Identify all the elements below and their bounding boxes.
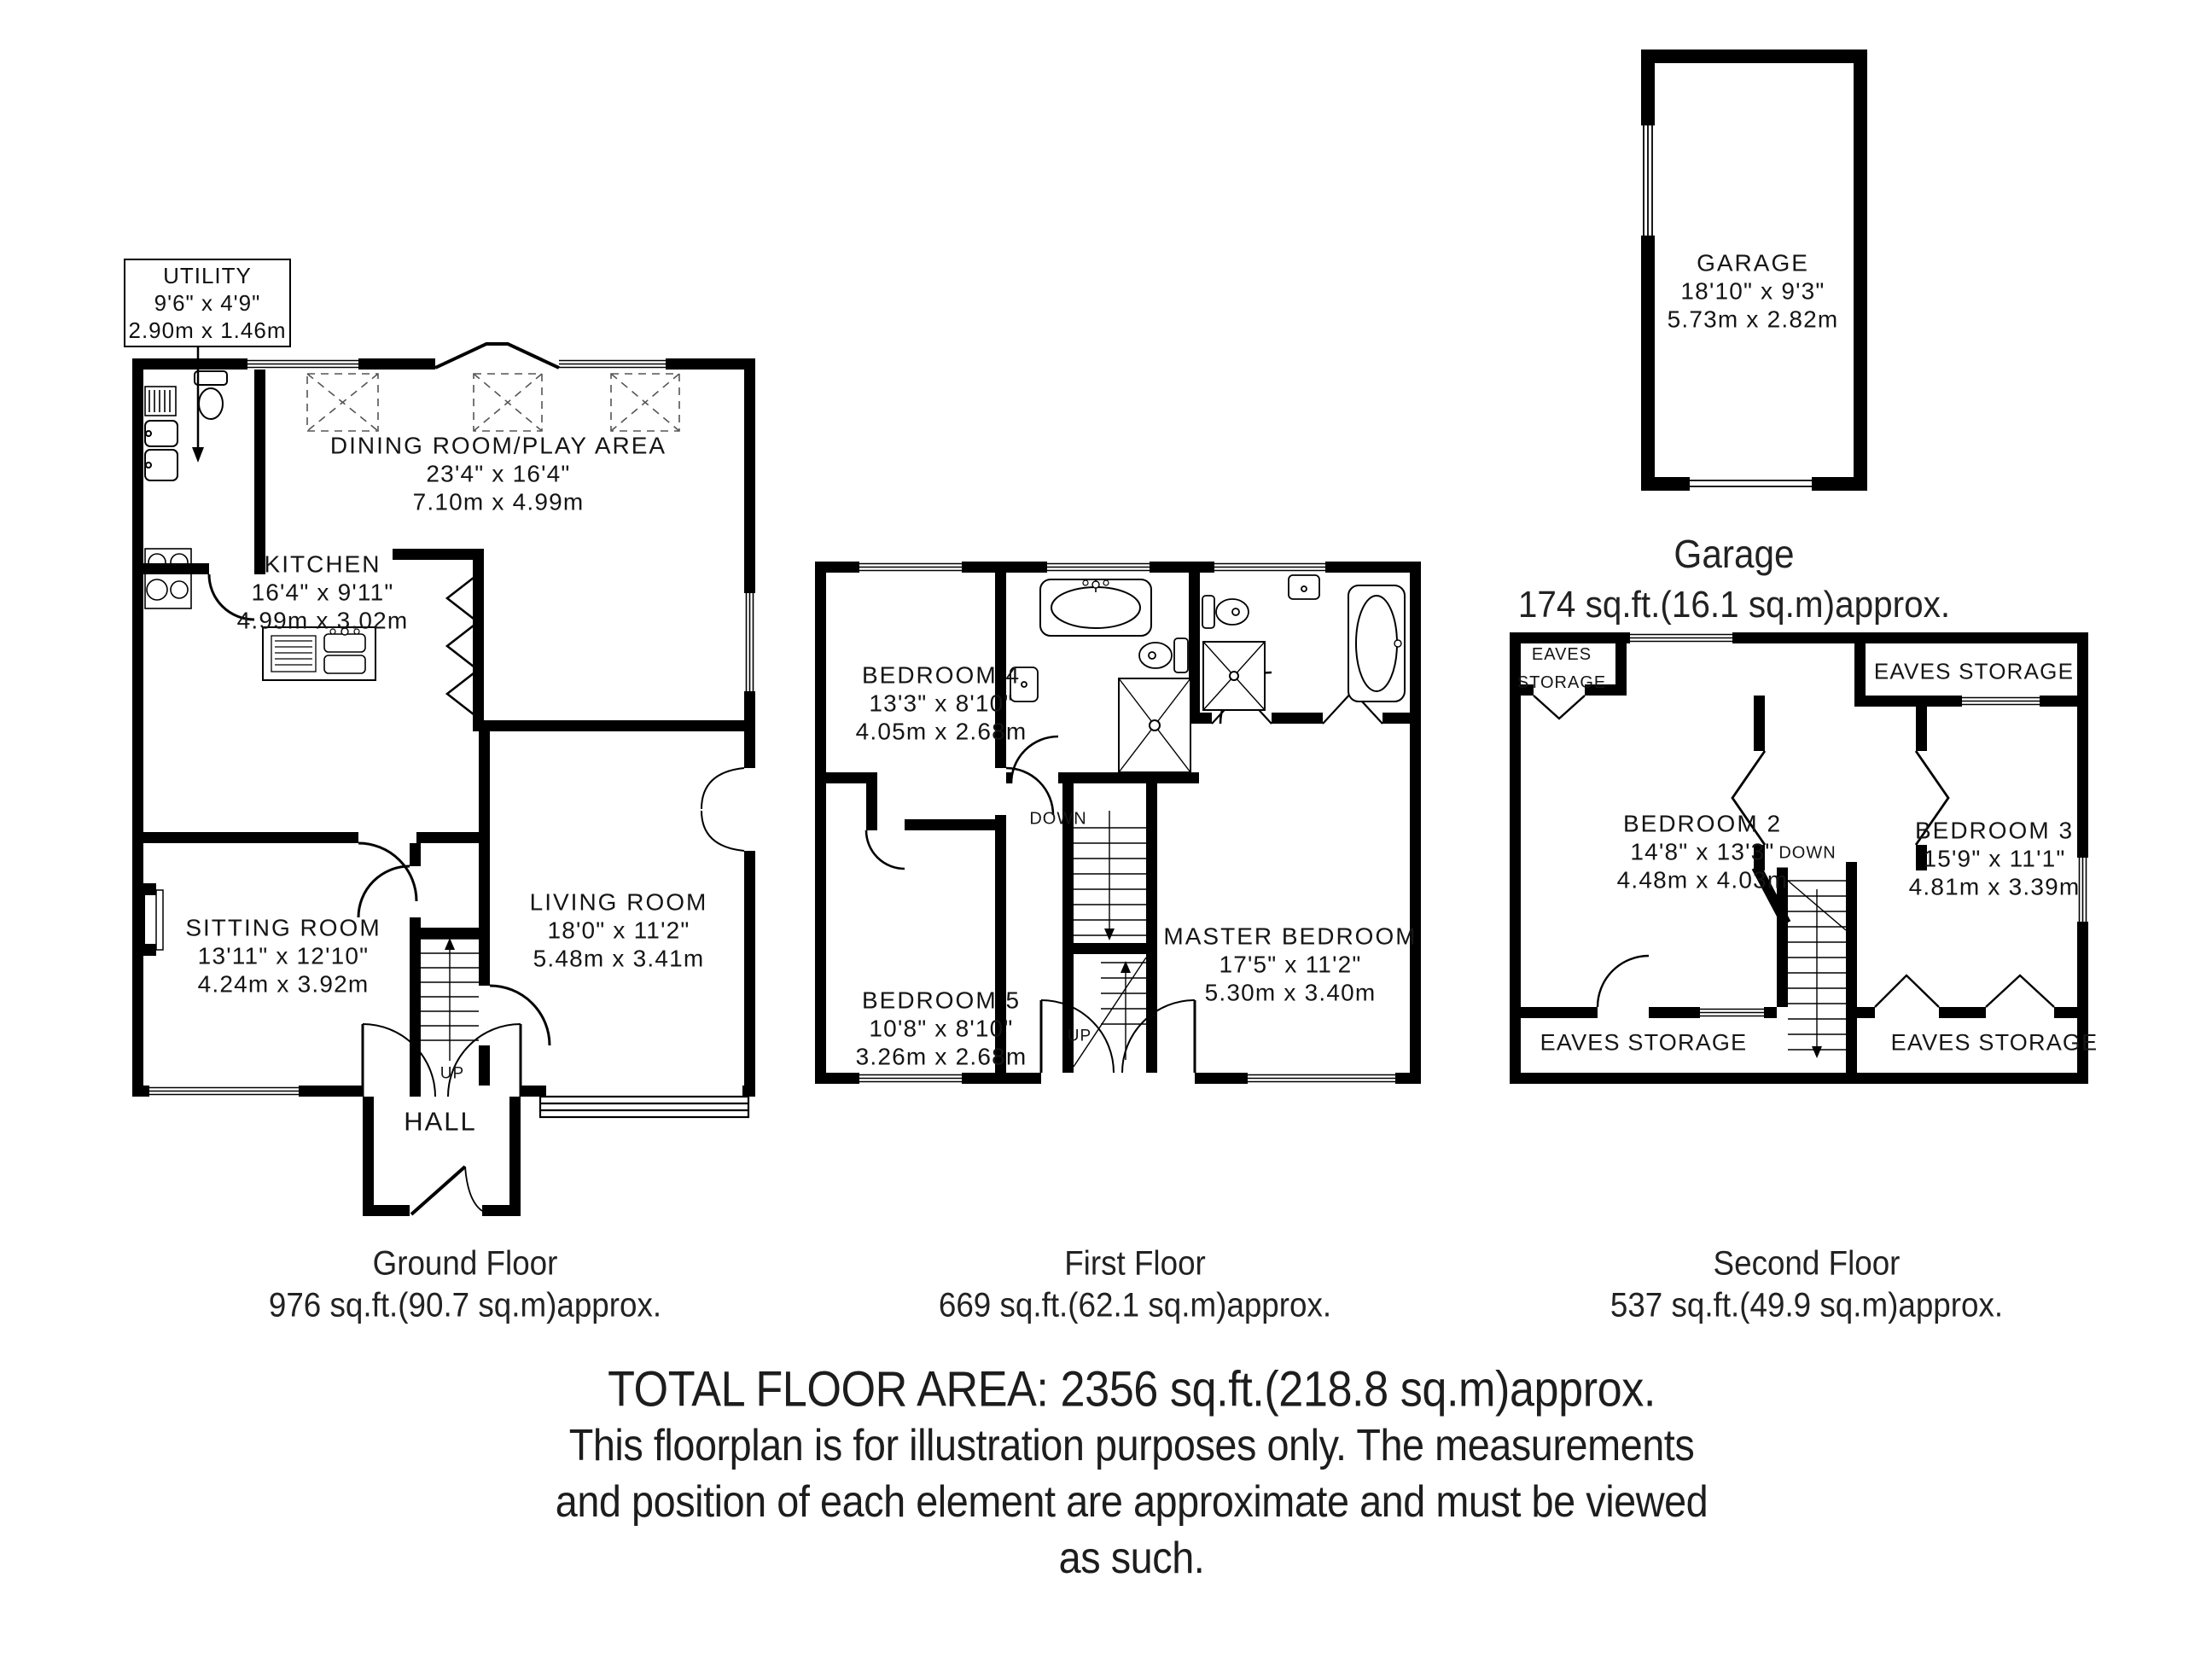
bath-icon xyxy=(1348,585,1405,701)
total-floor-area: TOTAL FLOOR AREA: 2356 sq.ft.(218.8 sq.m… xyxy=(608,1361,1656,1418)
chimney-icon xyxy=(132,883,163,956)
window xyxy=(1641,125,1655,236)
down-label-first: DOWN xyxy=(1029,806,1086,834)
garage-caption-area: 174 sq.ft.(16.1 sq.m)approx. xyxy=(1518,584,1950,626)
eaves-storage-label-tl: EAVES STORAGE xyxy=(1498,641,1626,697)
floorplan-page: UTILITY 9'6" x 4'9" 2.90m x 1.46m DINING… xyxy=(0,0,2212,1659)
stairs-up-icon xyxy=(421,938,479,1061)
disclaimer-line-1: This floorplan is for illustration purpo… xyxy=(569,1420,1695,1471)
room-label-bedroom2: BEDROOM 2 14'8" x 13'3" 4.48m x 4.03m xyxy=(1617,810,1789,894)
shower-icon xyxy=(1119,678,1190,772)
up-label-first: UP xyxy=(1068,1022,1091,1051)
room-name: UTILITY xyxy=(125,262,289,289)
ground-caption-area: 976 sq.ft.(90.7 sq.m)approx. xyxy=(269,1287,661,1325)
sink-icon xyxy=(1289,575,1319,599)
bath-icon xyxy=(1040,579,1151,636)
eaves-storage-label-tr: EAVES STORAGE xyxy=(1874,658,2074,686)
toilet-icon xyxy=(1139,638,1188,672)
second-caption-title: Second Floor xyxy=(1714,1245,1901,1284)
toilet-icon xyxy=(1202,596,1249,628)
bay-window-icon xyxy=(540,1097,748,1117)
ceiling-feature-icons xyxy=(307,374,679,431)
ground-caption-title: Ground Floor xyxy=(373,1245,558,1284)
room-metric: 2.90m x 1.46m xyxy=(125,317,289,344)
room-label-bedroom4: BEDROOM 4 13'3" x 8'10" 4.05m x 2.68m xyxy=(856,661,1027,746)
room-label-bedroom3: BEDROOM 3 15'9" x 11'1" 4.81m x 3.39m xyxy=(1909,817,2081,901)
room-label-garage: GARAGE 18'10" x 9'3" 5.73m x 2.82m xyxy=(1668,249,1839,334)
room-label-sitting: SITTING ROOM 13'11" x 12'10" 4.24m x 3.9… xyxy=(185,914,381,998)
kitchen-island-icon xyxy=(263,627,375,680)
room-label-dining: DINING ROOM/PLAY AREA 23'4" x 16'4" 7.10… xyxy=(330,432,667,516)
room-label-kitchen: KITCHEN 16'4" x 9'11" 4.99m x 3.02m xyxy=(237,550,409,635)
room-label-living: LIVING ROOM 18'0" x 11'2" 5.48m x 3.41m xyxy=(530,888,708,973)
second-caption-area: 537 sq.ft.(49.9 sq.m)approx. xyxy=(1610,1287,2003,1325)
room-label-bedroom5: BEDROOM 5 10'8" x 8'10" 3.26m x 2.68m xyxy=(856,987,1027,1071)
eaves-storage-label-bl: EAVES STORAGE xyxy=(1540,1029,1748,1057)
disclaimer-line-3: as such. xyxy=(1059,1533,1205,1584)
eaves-storage-label-br: EAVES STORAGE xyxy=(1891,1029,2098,1057)
stairs-down-icon xyxy=(1788,881,1846,1058)
utility-arrow xyxy=(171,341,239,469)
down-label-second: DOWN xyxy=(1776,840,1838,868)
room-label-master: MASTER BEDROOM 17'5" x 11'2" 5.30m x 3.4… xyxy=(1163,923,1417,1007)
garage-door xyxy=(1690,480,1812,486)
first-caption-area: 669 sq.ft.(62.1 sq.m)approx. xyxy=(939,1287,1331,1325)
garage-caption-title: Garage xyxy=(1674,531,1794,577)
shower-icon xyxy=(1203,642,1265,710)
disclaimer-line-2: and position of each element are approxi… xyxy=(556,1476,1708,1528)
bay-window-icon xyxy=(435,344,559,368)
hob-icon xyxy=(145,549,191,608)
up-label-ground: UP xyxy=(440,1060,464,1088)
room-imperial: 9'6" x 4'9" xyxy=(125,289,289,317)
utility-callout: UTILITY 9'6" x 4'9" 2.90m x 1.46m xyxy=(124,259,291,347)
first-caption-title: First Floor xyxy=(1064,1245,1206,1284)
hall-label: HALL xyxy=(404,1108,477,1136)
